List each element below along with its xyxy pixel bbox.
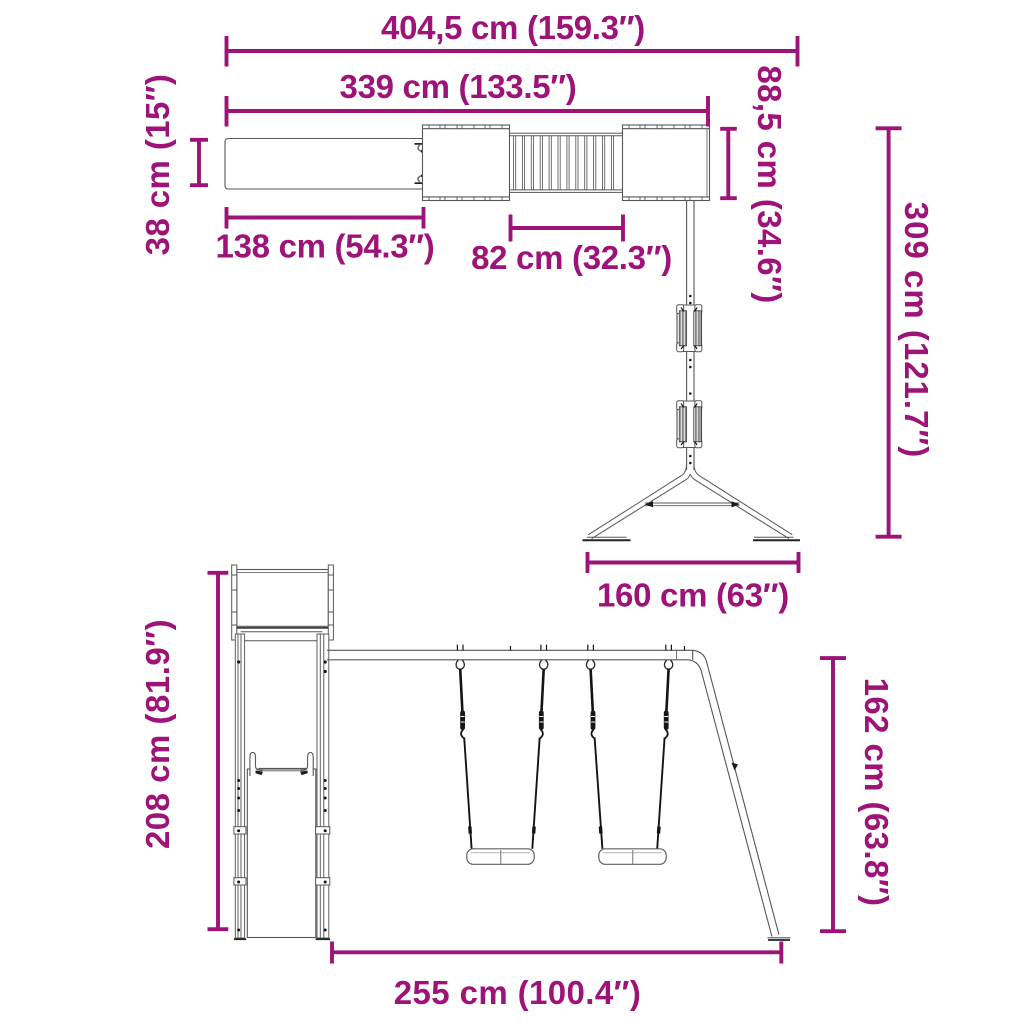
svg-text:82 cm (32.3″): 82 cm (32.3″)	[471, 239, 672, 276]
svg-text:38 cm (15″): 38 cm (15″)	[139, 74, 176, 256]
svg-text:255 cm (100.4″): 255 cm (100.4″)	[394, 974, 641, 1011]
svg-text:138 cm (54.3″): 138 cm (54.3″)	[216, 228, 435, 265]
svg-text:339 cm (133.5″): 339 cm (133.5″)	[340, 68, 577, 105]
svg-text:208 cm (81.9″): 208 cm (81.9″)	[139, 619, 176, 849]
svg-text:404,5 cm (159.3″): 404,5 cm (159.3″)	[381, 9, 645, 46]
svg-text:88,5 cm (34.6″): 88,5 cm (34.6″)	[751, 65, 788, 303]
svg-text:160 cm (63″): 160 cm (63″)	[597, 577, 789, 614]
svg-text:309 cm (121.7″): 309 cm (121.7″)	[898, 202, 935, 458]
svg-text:162 cm (63.8″): 162 cm (63.8″)	[858, 678, 895, 907]
